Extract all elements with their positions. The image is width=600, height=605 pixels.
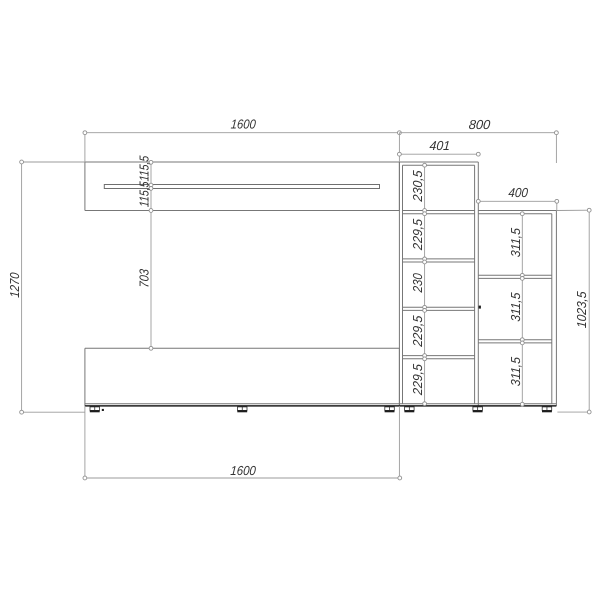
svg-text:401: 401 (429, 138, 451, 153)
svg-text:229,5: 229,5 (410, 314, 425, 348)
svg-text:1270: 1270 (7, 271, 22, 298)
svg-text:229,5: 229,5 (410, 218, 425, 252)
svg-text:311,5: 311,5 (508, 291, 523, 322)
svg-text:115,5: 115,5 (137, 180, 152, 207)
svg-text:115,5: 115,5 (137, 155, 152, 182)
svg-text:1023,5: 1023,5 (574, 290, 589, 328)
svg-text:230,5: 230,5 (410, 169, 425, 203)
svg-text:1600: 1600 (230, 463, 257, 478)
svg-text:311,5: 311,5 (508, 356, 523, 387)
svg-text:229,5: 229,5 (410, 363, 425, 397)
svg-text:1600: 1600 (230, 117, 257, 132)
svg-text:400: 400 (508, 185, 529, 200)
svg-text:230: 230 (410, 272, 425, 294)
svg-text:703: 703 (137, 268, 152, 288)
svg-text:800: 800 (468, 117, 491, 132)
svg-text:311,5: 311,5 (508, 227, 523, 258)
